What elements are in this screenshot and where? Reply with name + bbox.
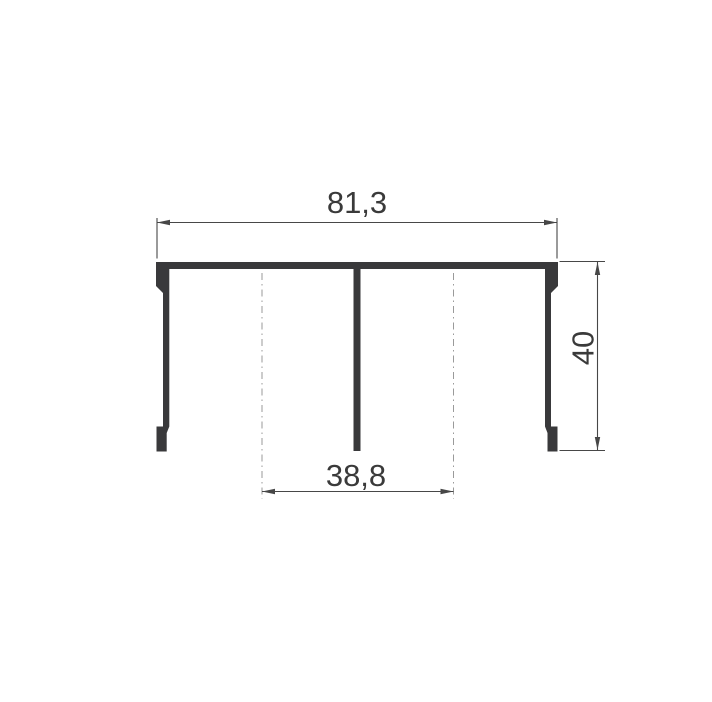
arrowhead-down-icon [595, 437, 600, 450]
dimension-center-spacing: 38,8 [262, 458, 454, 494]
arrowhead-right-icon [544, 220, 557, 225]
dimension-overall-height: 40 [560, 262, 606, 451]
profile-outline [156, 262, 558, 452]
dimension-label-overall-height: 40 [566, 331, 601, 365]
dimension-label-overall-width: 81,3 [327, 185, 387, 220]
arrowhead-up-icon [595, 262, 600, 275]
dimension-overall-width: 81,3 [157, 185, 557, 259]
profile-cross-section-svg: 81,3 38,8 40 [0, 0, 712, 702]
dimension-label-center-spacing: 38,8 [326, 458, 386, 493]
arrowhead-left-icon [262, 489, 275, 494]
arrowhead-right-icon [441, 489, 454, 494]
arrowhead-left-icon [157, 220, 170, 225]
technical-drawing: 81,3 38,8 40 [0, 0, 712, 702]
